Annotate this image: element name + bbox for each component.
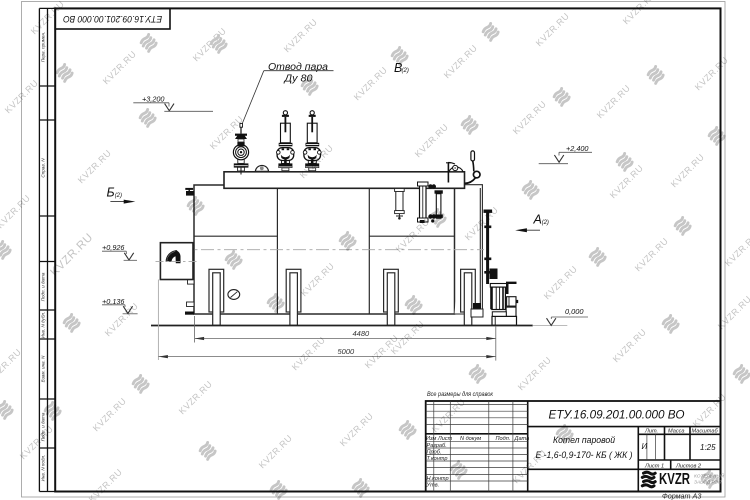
svg-text:(2): (2) bbox=[542, 220, 549, 226]
svg-text:А: А bbox=[533, 212, 542, 226]
svg-text:(2): (2) bbox=[115, 193, 122, 199]
svg-text:N докум: N докум bbox=[460, 436, 481, 442]
svg-text:Масса: Масса bbox=[668, 429, 685, 435]
svg-text:Перв. примен.: Перв. примен. bbox=[40, 32, 45, 63]
svg-text:+0,926: +0,926 bbox=[102, 243, 125, 252]
svg-text:5000: 5000 bbox=[338, 347, 356, 356]
svg-text:Справ. N: Справ. N bbox=[40, 158, 45, 178]
svg-text:Лист 1: Лист 1 bbox=[644, 464, 664, 470]
svg-text:И: И bbox=[642, 442, 648, 451]
svg-text:ЕТУ.16.09.201.00.000 ВО: ЕТУ.16.09.201.00.000 ВО bbox=[549, 408, 685, 422]
svg-text:0,000: 0,000 bbox=[565, 307, 584, 316]
svg-text:Взам. инв. N: Взам. инв. N bbox=[40, 355, 45, 382]
svg-text:+2,400: +2,400 bbox=[566, 144, 589, 153]
svg-text:Инв. N дубл.: Инв. N дубл. bbox=[40, 312, 45, 339]
svg-text:Лит.: Лит. bbox=[644, 429, 658, 435]
svg-text:Инв. N подл.: Инв. N подл. bbox=[40, 455, 45, 482]
svg-text:Все размеры для справок: Все размеры для справок bbox=[427, 390, 494, 398]
svg-text:Б: Б bbox=[107, 186, 115, 200]
svg-text:(2): (2) bbox=[402, 68, 409, 74]
svg-text:Формат А3: Формат А3 bbox=[662, 492, 701, 500]
svg-text:4480: 4480 bbox=[353, 329, 371, 338]
svg-text:Подп. и дата: Подп. и дата bbox=[40, 272, 45, 301]
svg-text:KVZR: KVZR bbox=[659, 471, 690, 488]
svg-text:Т.контр: Т.контр bbox=[427, 456, 448, 462]
svg-text:Подп.: Подп. bbox=[496, 436, 511, 442]
svg-text:Разраб.: Разраб. bbox=[427, 443, 447, 449]
svg-text:Масштаб: Масштаб bbox=[692, 429, 719, 435]
svg-text:Н.контр: Н.контр bbox=[427, 476, 449, 482]
svg-text:Отвод пара: Отвод пара bbox=[268, 62, 328, 73]
svg-text:Листов 2: Листов 2 bbox=[675, 464, 702, 470]
svg-text:1:25: 1:25 bbox=[700, 443, 716, 452]
svg-text:Проб.: Проб. bbox=[427, 450, 442, 456]
svg-text:Дата: Дата bbox=[514, 436, 530, 442]
svg-text:ЕТУ.16.09.201.00.000 ВО: ЕТУ.16.09.201.00.000 ВО bbox=[63, 13, 162, 24]
svg-text:Изм Лист: Изм Лист bbox=[426, 436, 453, 442]
svg-text:+3,200: +3,200 bbox=[142, 94, 165, 103]
svg-text:Е -1,6-0,9-170- КБ ( ЖК ): Е -1,6-0,9-170- КБ ( ЖК ) bbox=[536, 450, 633, 461]
svg-text:Утв.: Утв. bbox=[426, 483, 440, 489]
